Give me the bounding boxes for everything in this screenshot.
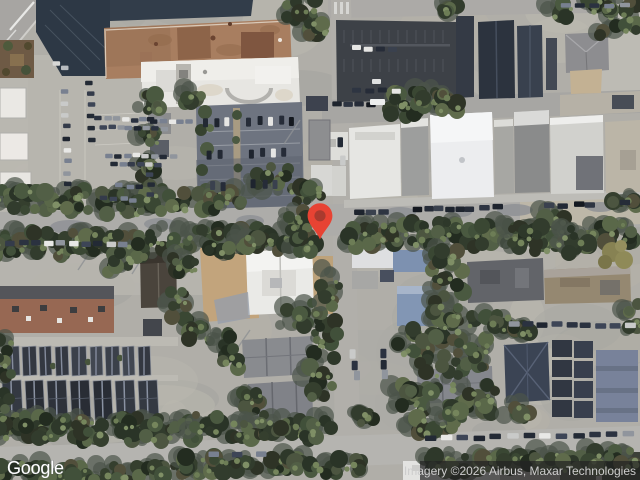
svg-text:Imagery ©2026 Airbus, Maxar Te: Imagery ©2026 Airbus, Maxar Technologies bbox=[404, 464, 636, 478]
svg-text:Google: Google bbox=[7, 458, 64, 478]
